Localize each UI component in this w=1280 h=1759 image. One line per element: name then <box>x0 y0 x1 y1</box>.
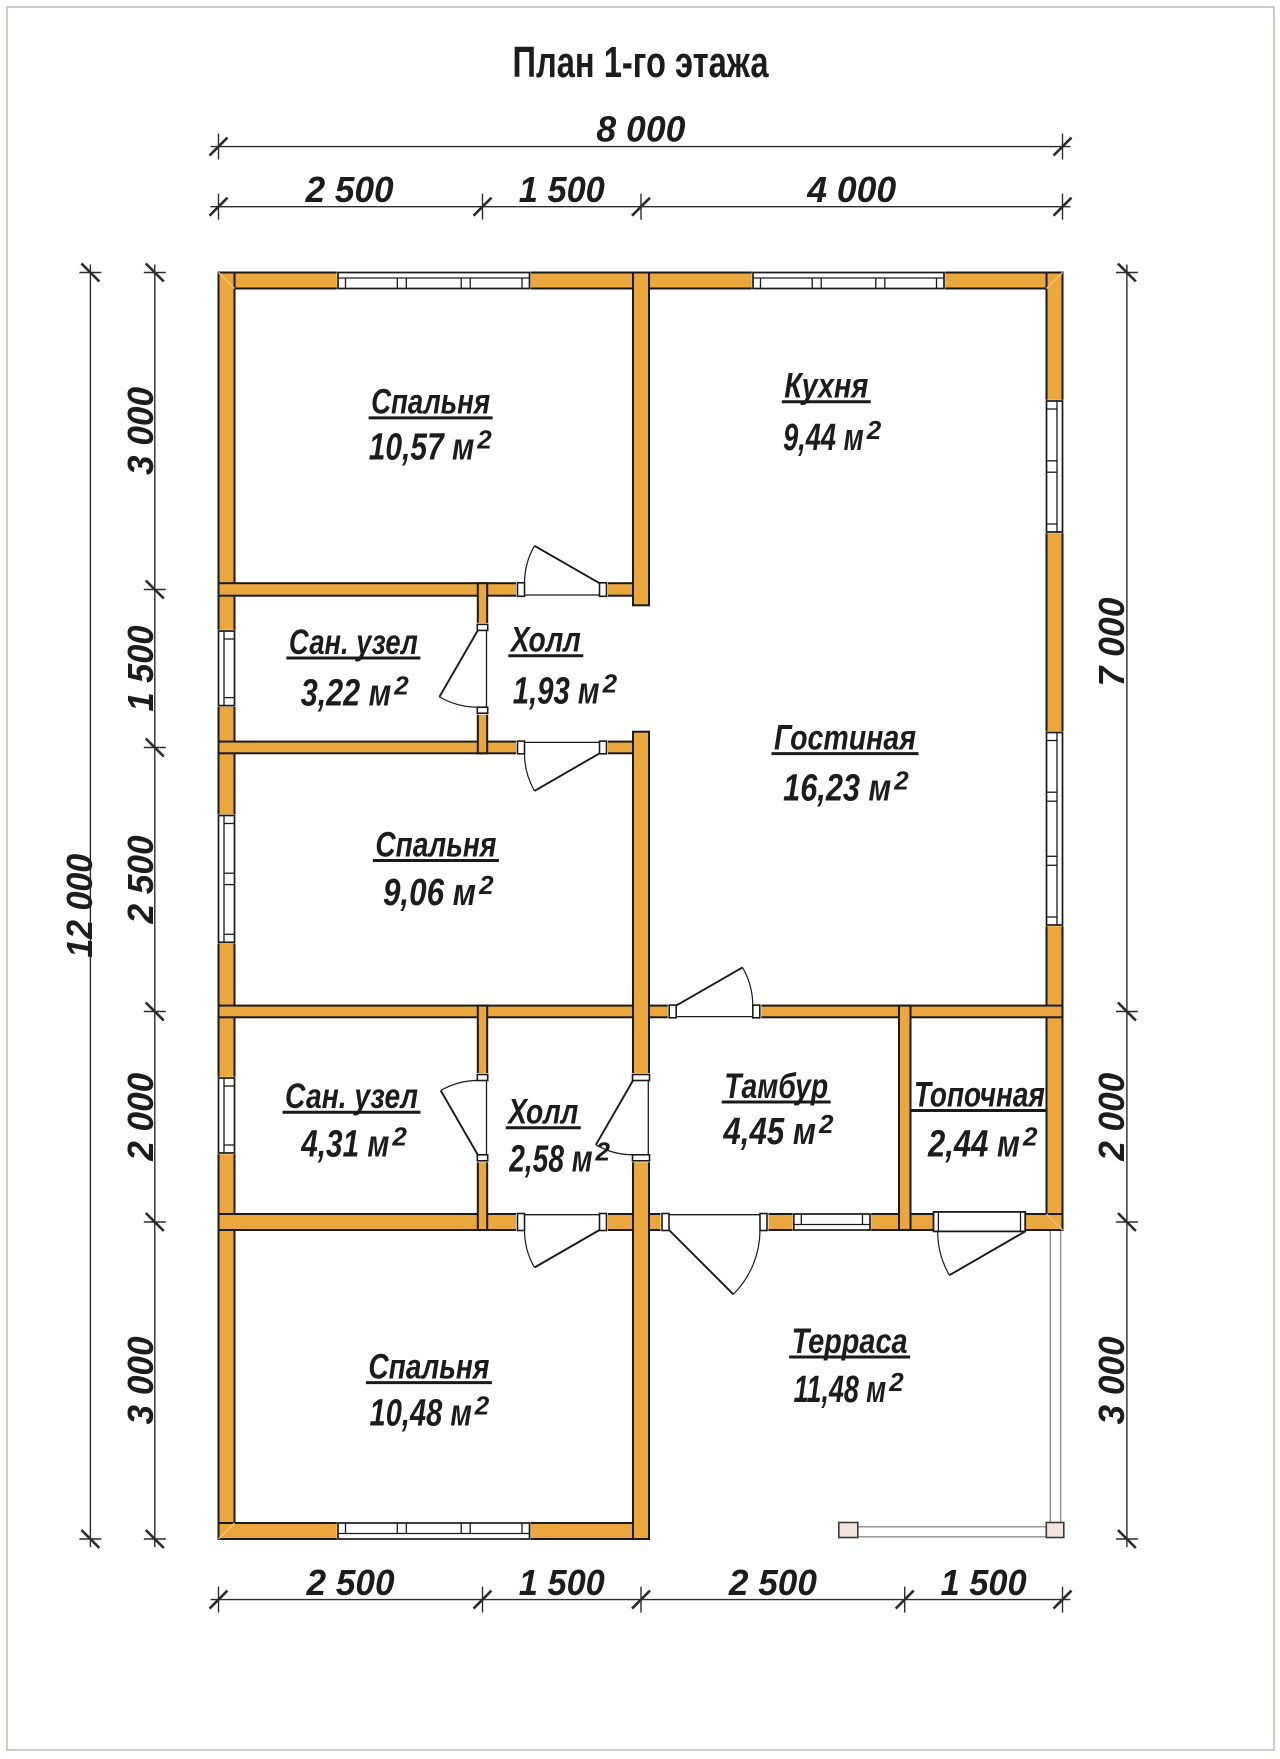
svg-text:2: 2 <box>893 766 909 796</box>
svg-text:Спальня: Спальня <box>371 382 490 422</box>
svg-text:8 000: 8 000 <box>596 108 685 149</box>
svg-text:2: 2 <box>391 1121 407 1151</box>
svg-text:2 500: 2 500 <box>306 1562 395 1603</box>
svg-text:7 000: 7 000 <box>1091 598 1132 687</box>
svg-text:2: 2 <box>818 1109 834 1139</box>
svg-text:План 1-го этажа: План 1-го этажа <box>513 38 769 87</box>
svg-text:3 000: 3 000 <box>1091 1337 1132 1425</box>
svg-text:9,44 м: 9,44 м <box>783 417 864 459</box>
svg-text:Тамбур: Тамбур <box>724 1066 828 1106</box>
svg-text:3,22 м: 3,22 м <box>301 673 392 715</box>
svg-text:1 500: 1 500 <box>519 169 605 210</box>
svg-text:2: 2 <box>1022 1121 1038 1151</box>
svg-text:2: 2 <box>476 425 492 455</box>
svg-text:Холл: Холл <box>509 620 581 660</box>
svg-text:2: 2 <box>595 1136 611 1166</box>
svg-text:2 000: 2 000 <box>1091 1073 1132 1162</box>
svg-text:2 000: 2 000 <box>120 1073 161 1162</box>
svg-text:10,57 м: 10,57 м <box>369 427 475 469</box>
svg-text:Топочная: Топочная <box>914 1074 1045 1114</box>
svg-text:2 500: 2 500 <box>728 1562 817 1603</box>
svg-text:1 500: 1 500 <box>941 1562 1027 1603</box>
svg-text:Холл: Холл <box>507 1092 579 1132</box>
svg-text:2: 2 <box>478 870 494 900</box>
svg-text:Кухня: Кухня <box>784 366 868 406</box>
svg-text:2 500: 2 500 <box>120 836 161 925</box>
svg-text:1 500: 1 500 <box>120 626 161 712</box>
svg-text:1,93 м: 1,93 м <box>513 670 600 712</box>
svg-text:3 000: 3 000 <box>120 1337 161 1425</box>
svg-text:Гостиная: Гостиная <box>774 717 916 757</box>
svg-text:Спальня: Спальня <box>368 1346 489 1386</box>
svg-text:2: 2 <box>474 1391 490 1421</box>
svg-text:3 000: 3 000 <box>120 387 161 475</box>
svg-text:Сан. узел: Сан. узел <box>285 1076 418 1116</box>
svg-text:2,44 м: 2,44 м <box>927 1123 1020 1165</box>
svg-text:4,31 м: 4,31 м <box>300 1123 389 1165</box>
svg-text:12 000: 12 000 <box>59 854 100 958</box>
svg-text:2,58 м: 2,58 м <box>509 1138 593 1180</box>
svg-text:Спальня: Спальня <box>375 824 496 864</box>
svg-text:2 500: 2 500 <box>305 169 394 210</box>
svg-text:Терраса: Терраса <box>792 1321 908 1361</box>
svg-text:1 500: 1 500 <box>519 1562 605 1603</box>
svg-text:4,45 м: 4,45 м <box>723 1111 816 1153</box>
svg-text:2: 2 <box>866 415 882 445</box>
svg-text:10,48 м: 10,48 м <box>370 1393 472 1435</box>
svg-text:9,06 м: 9,06 м <box>383 872 476 914</box>
svg-text:2: 2 <box>888 1367 904 1397</box>
svg-text:16,23 м: 16,23 м <box>783 768 891 810</box>
svg-text:4 000: 4 000 <box>806 169 896 210</box>
svg-text:11,48 м: 11,48 м <box>794 1369 887 1411</box>
svg-text:2: 2 <box>393 671 409 701</box>
svg-text:2: 2 <box>602 668 618 698</box>
svg-text:Сан. узел: Сан. узел <box>289 622 418 662</box>
